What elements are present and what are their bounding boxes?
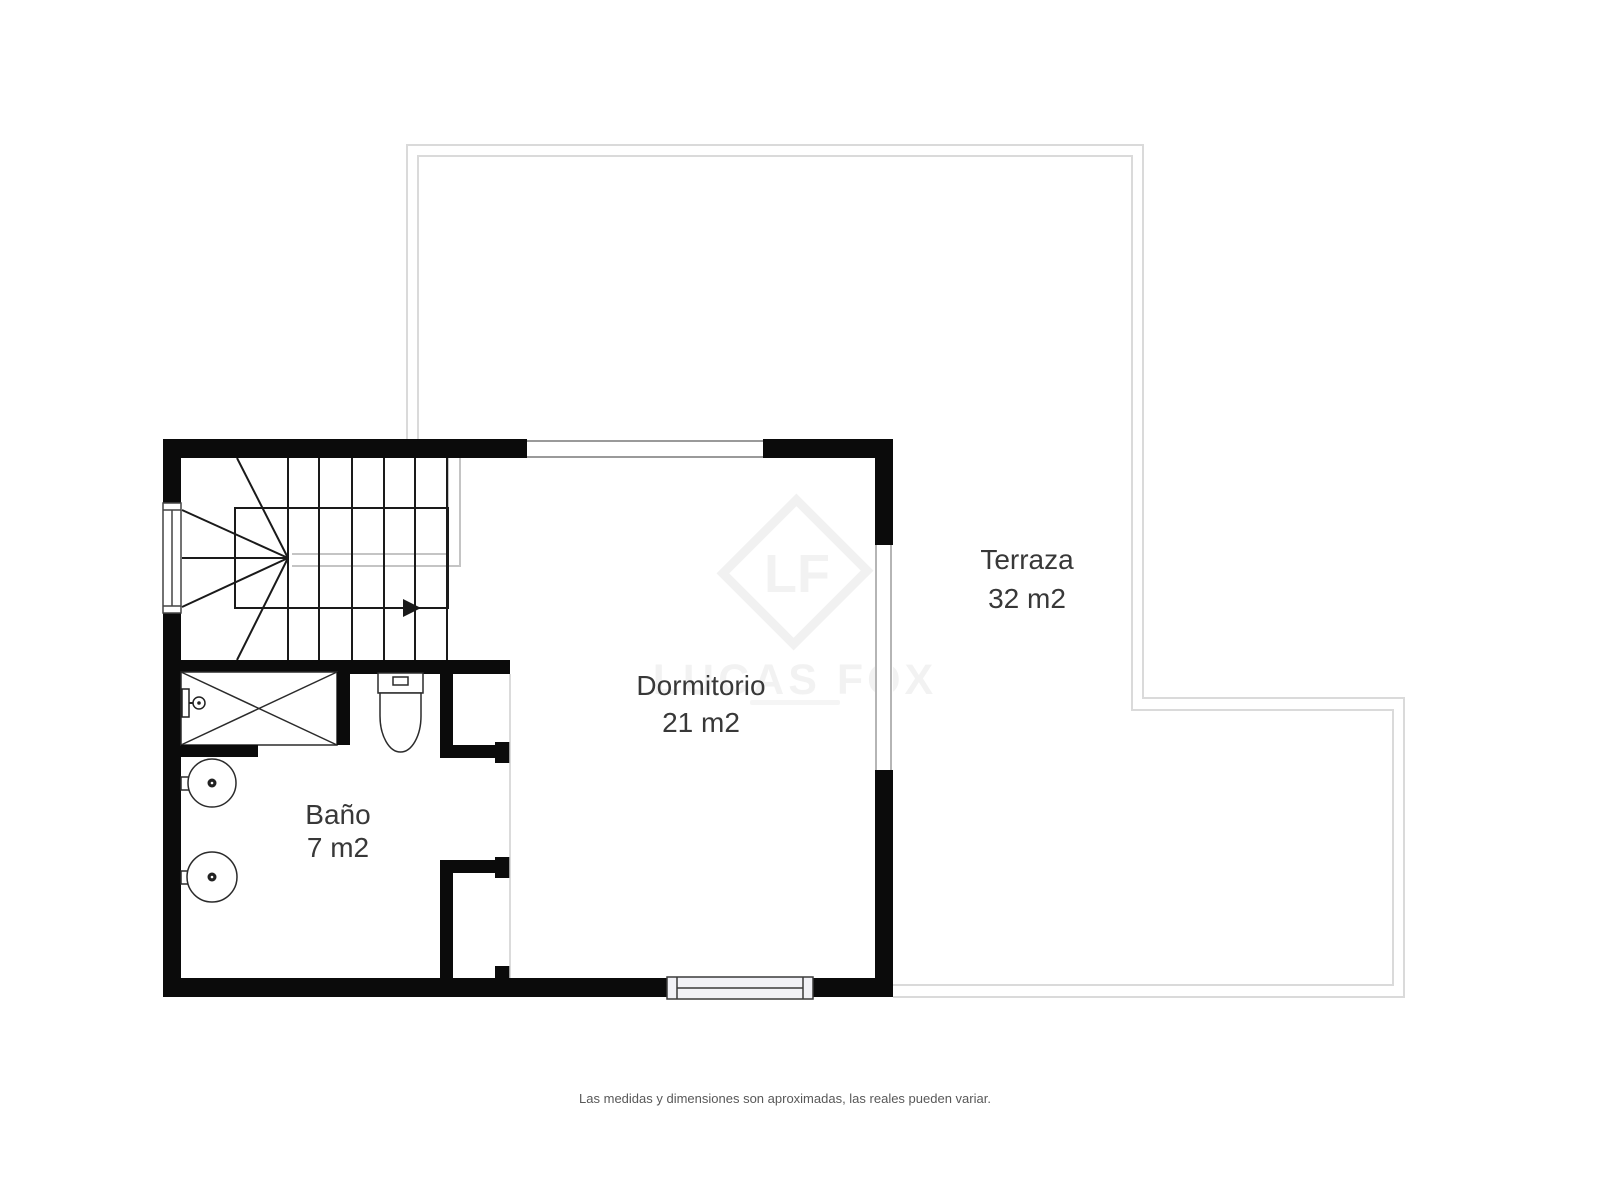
wall-right-upper	[875, 439, 893, 545]
door-jamb-lower	[495, 857, 510, 878]
toilet-flush-button	[393, 677, 408, 685]
bano-area: 7 m2	[307, 832, 369, 863]
stair-break-line	[292, 458, 460, 566]
floor-plan-page: LF LUCAS FOX	[0, 0, 1600, 1200]
window-top	[527, 441, 763, 457]
dormitorio-name: Dormitorio	[636, 670, 765, 701]
terrace-outline-outer	[407, 145, 1404, 997]
room-label-bano: Baño 7 m2	[305, 799, 370, 863]
terraza-area: 32 m2	[988, 583, 1066, 614]
sink-1	[181, 759, 236, 807]
staircase	[182, 458, 448, 660]
wall-toilet-nook-h	[453, 745, 497, 758]
stair-winder-lines	[182, 458, 288, 660]
room-label-dormitorio: Dormitorio 21 m2	[636, 670, 765, 738]
shower	[181, 672, 350, 757]
toilet	[378, 673, 423, 752]
shower-wall-bottom	[181, 745, 258, 757]
wall-left-upper	[163, 439, 181, 503]
toilet-bowl	[380, 693, 421, 752]
wall-left-lower	[163, 613, 181, 997]
door-jamb-upper	[495, 742, 510, 763]
window-left	[163, 503, 181, 613]
wall-lower-nook-h	[453, 860, 497, 873]
floor-plan-canvas: LF LUCAS FOX	[0, 0, 1600, 1200]
terraza-name: Terraza	[980, 544, 1074, 575]
wall-top-right	[763, 439, 893, 458]
bano-name: Baño	[305, 799, 370, 830]
footer-disclaimer: Las medidas y dimensiones son aproximada…	[579, 1091, 991, 1106]
watermark-initials: LF	[764, 544, 830, 604]
dormitorio-area: 21 m2	[662, 707, 740, 738]
sink-2	[181, 852, 237, 902]
terrace-outline	[407, 145, 1404, 997]
window-bottom	[667, 977, 813, 999]
stair-direction-arrow	[237, 599, 421, 617]
shower-wall-right	[337, 672, 350, 745]
door-jamb-bottom	[495, 966, 510, 978]
room-label-terraza: Terraza 32 m2	[980, 544, 1074, 614]
wall-right-lower	[875, 770, 893, 997]
wall-bottom-left	[163, 978, 667, 997]
wall-toilet-nook-v	[440, 674, 453, 758]
arrow-head-icon	[403, 599, 421, 617]
wall-lower-nook-v	[440, 860, 453, 978]
terrace-door-opening	[875, 545, 893, 770]
terrace-outline-inner	[418, 156, 1393, 985]
wall-top-left	[163, 439, 527, 458]
stair-treads	[288, 458, 447, 660]
